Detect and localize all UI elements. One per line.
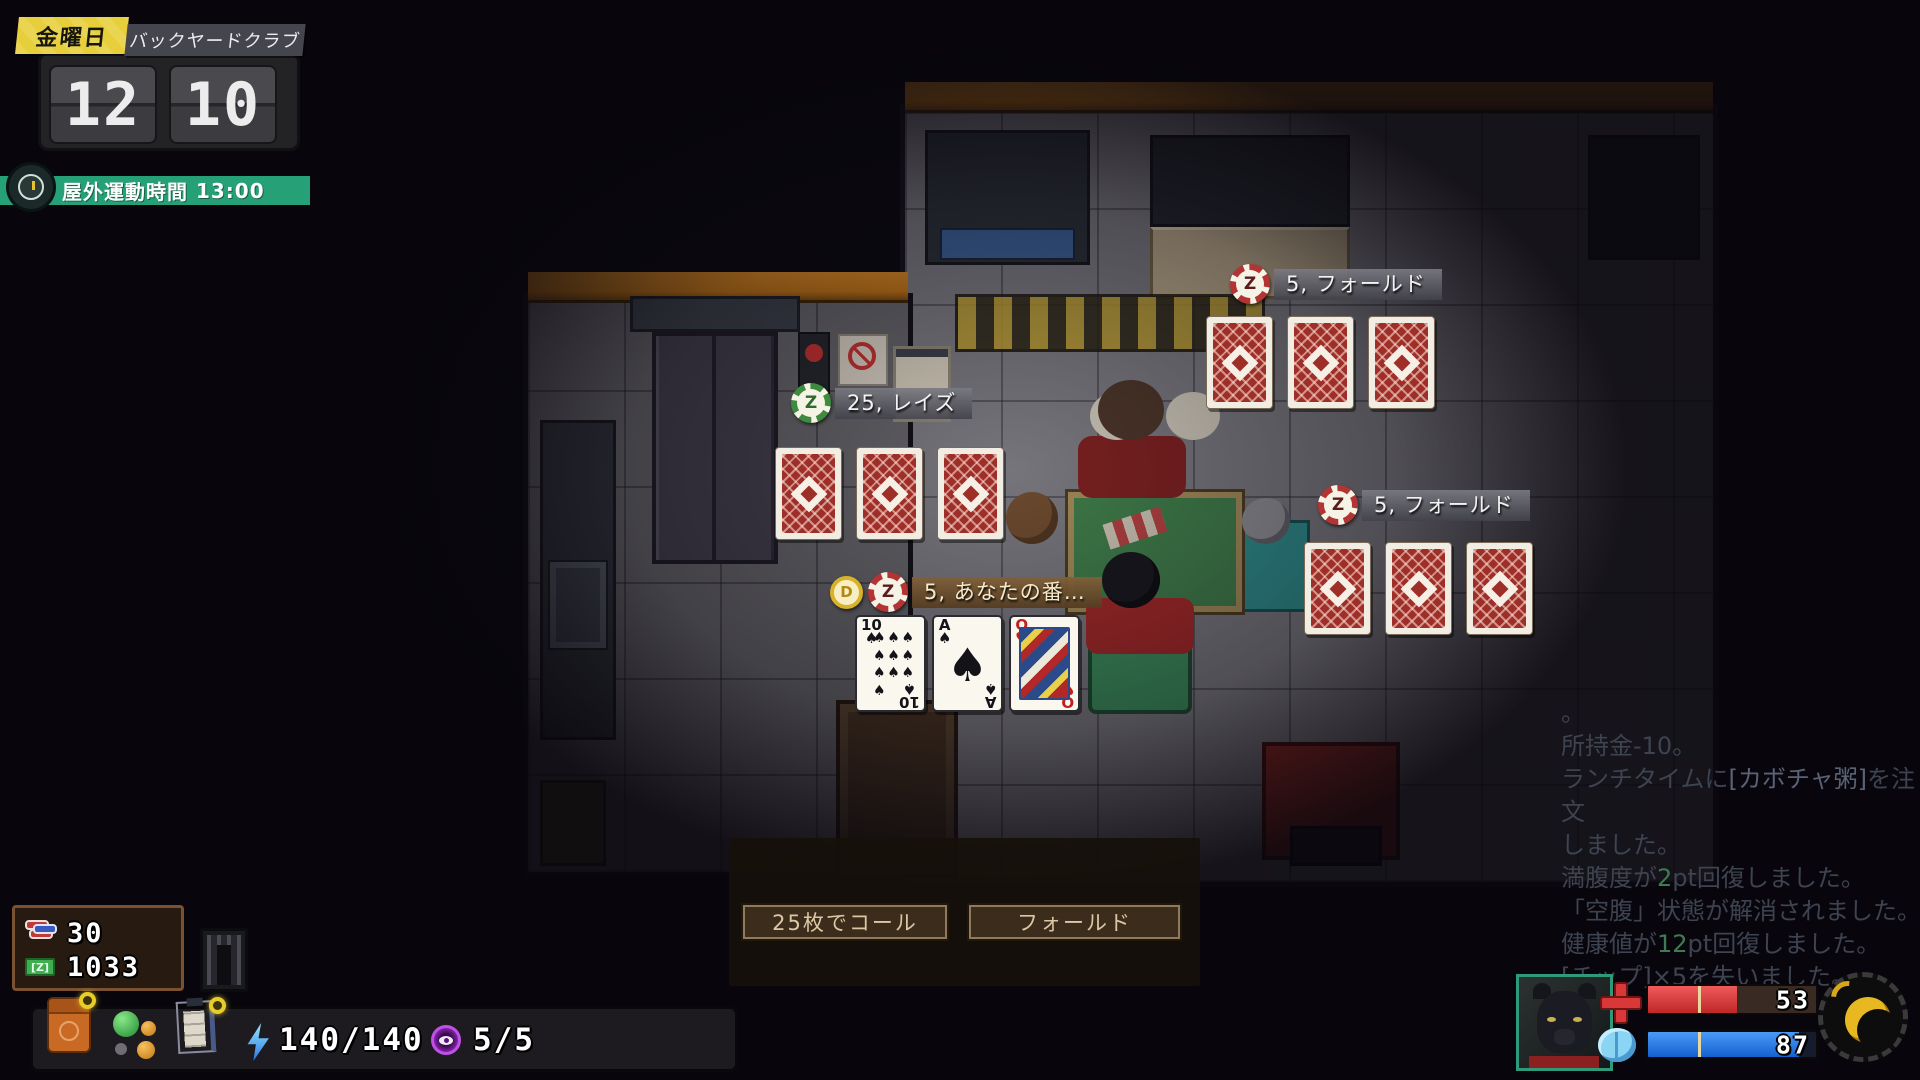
mind-icon xyxy=(1598,1028,1636,1062)
clock-minute: 10 xyxy=(169,65,277,144)
schedule-time: 13:00 xyxy=(196,179,265,203)
log-line: しました。 xyxy=(1561,829,1920,862)
energy-icon xyxy=(245,1023,271,1061)
location-badge: バックヤードクラブ xyxy=(124,24,305,56)
side-machine xyxy=(1588,135,1700,260)
shelf-bottles xyxy=(1150,135,1350,227)
wallet-panel: 30 [Z] 1033 xyxy=(12,905,184,991)
hand-card-Q: Q♥Q♥ xyxy=(1009,615,1080,712)
day-label: 金曜日 xyxy=(34,20,109,52)
sink xyxy=(548,560,608,650)
log-line: 健康値が12pt回復しました。 xyxy=(1561,928,1920,961)
skill-tree-button[interactable] xyxy=(111,1011,157,1061)
fold-right-text: 5, フォールド xyxy=(1362,490,1530,521)
card-back xyxy=(1368,316,1435,409)
no-entry-glyph xyxy=(848,342,876,370)
chip-icon-green: Z xyxy=(791,383,831,423)
vision-icon xyxy=(431,1025,461,1055)
fold-button[interactable]: フォールド xyxy=(967,903,1182,941)
card-back xyxy=(1304,542,1371,635)
card-back xyxy=(1287,316,1354,409)
card-back xyxy=(856,447,923,540)
dealer-button-icon: D xyxy=(830,576,863,609)
mind-value: 87 xyxy=(1776,1030,1810,1059)
card-back xyxy=(1385,542,1452,635)
cards-folder-top xyxy=(1206,316,1435,409)
health-icon xyxy=(1600,982,1642,1024)
wall-top-main xyxy=(905,82,1713,110)
player-hand: 10♠10♠♠♠♠♠♠♠♠♠♠♠A♠A♠♠Q♥Q♥ xyxy=(855,615,1080,712)
chips-count: 30 xyxy=(67,918,104,949)
fold-top-text: 5, フォールド xyxy=(1274,269,1442,300)
lounge-table xyxy=(1290,826,1382,866)
cash-count: 1033 xyxy=(67,952,140,983)
your-turn-text: 5, あなたの番… xyxy=(912,577,1102,608)
jail-door-icon[interactable] xyxy=(200,928,248,992)
raise-label: Z 25, レイズ xyxy=(791,383,972,423)
flip-clock: 12 10 xyxy=(38,52,300,151)
log-line: 所持金-10。 xyxy=(1561,730,1920,763)
cards-raiser xyxy=(775,447,1004,540)
mind-bar: 87 xyxy=(1646,1030,1818,1059)
chip-icon-red: Z xyxy=(868,572,908,612)
player-portrait[interactable] xyxy=(1516,974,1613,1071)
tasks-alert-badge xyxy=(209,997,226,1014)
log-line: 。 xyxy=(1561,697,1920,730)
status-bar: 140/140 5/5 xyxy=(30,1006,738,1072)
npc-bull-head xyxy=(1098,380,1164,440)
card-back xyxy=(775,447,842,540)
player-head xyxy=(1102,552,1160,608)
card-back xyxy=(1206,316,1273,409)
bet-dialog: 25枚でコール フォールド xyxy=(729,838,1200,986)
schedule-label: 屋外運動時間 xyxy=(62,176,188,205)
health-bar: 53 xyxy=(1646,984,1818,1015)
money-icon: [Z] xyxy=(25,958,55,976)
day-badge: 金曜日 xyxy=(15,17,129,54)
hand-card-A: A♠A♠♠ xyxy=(932,615,1003,712)
npc-raccoon xyxy=(1242,498,1290,544)
chips-row: 30 xyxy=(25,916,171,950)
chip-icon-red: Z xyxy=(1318,485,1358,525)
event-log: 。所持金-10。ランチタイムに[カボチャ粥]を注文しました。満腹度が2pt回復し… xyxy=(1561,697,1920,994)
alarm-light xyxy=(805,344,823,362)
call-button[interactable]: 25枚でコール xyxy=(741,903,949,941)
health-bar-tick xyxy=(1698,984,1701,1015)
card-back xyxy=(937,447,1004,540)
log-line: 満腹度が2pt回復しました。 xyxy=(1561,862,1920,895)
poker-chips-icon xyxy=(25,920,55,946)
hand-card-10: 10♠10♠♠♠♠♠♠♠♠♠♠♠ xyxy=(855,615,926,712)
health-value: 53 xyxy=(1776,985,1810,1014)
fold-label-right: Z 5, フォールド xyxy=(1318,485,1530,525)
fold-label-top: Z 5, フォールド xyxy=(1230,264,1442,304)
log-line: ランチタイムに[カボチャ粥]を注文 xyxy=(1561,763,1920,829)
chip-icon-red: Z xyxy=(1230,264,1270,304)
health-bar-fill xyxy=(1648,986,1737,1013)
actions-value: 5/5 xyxy=(473,1022,535,1058)
bag-button[interactable] xyxy=(47,997,91,1053)
cards-folder-right xyxy=(1304,542,1533,635)
console-screen xyxy=(940,228,1075,260)
bag-alert-badge xyxy=(79,992,96,1009)
low-shelf xyxy=(540,780,606,866)
clock-hour: 12 xyxy=(49,65,157,144)
npc-hedgehog xyxy=(1006,492,1058,544)
log-line: 「空腹」状態が解消されました。 xyxy=(1561,895,1920,928)
cash-row: [Z] 1033 xyxy=(25,950,171,984)
lockers xyxy=(630,296,800,332)
npc-bull-body xyxy=(1078,436,1186,498)
door-split xyxy=(712,336,716,560)
location-label: バックヤードクラブ xyxy=(128,27,302,53)
raise-text: 25, レイズ xyxy=(835,388,972,419)
coin-menu-button[interactable] xyxy=(1818,972,1908,1062)
card-back xyxy=(1466,542,1533,635)
clock-badge-icon xyxy=(6,162,56,212)
energy-value: 140/140 xyxy=(279,1022,424,1058)
mind-bar-tick xyxy=(1698,1030,1701,1059)
your-turn-label: D Z 5, あなたの番… xyxy=(830,572,1102,612)
